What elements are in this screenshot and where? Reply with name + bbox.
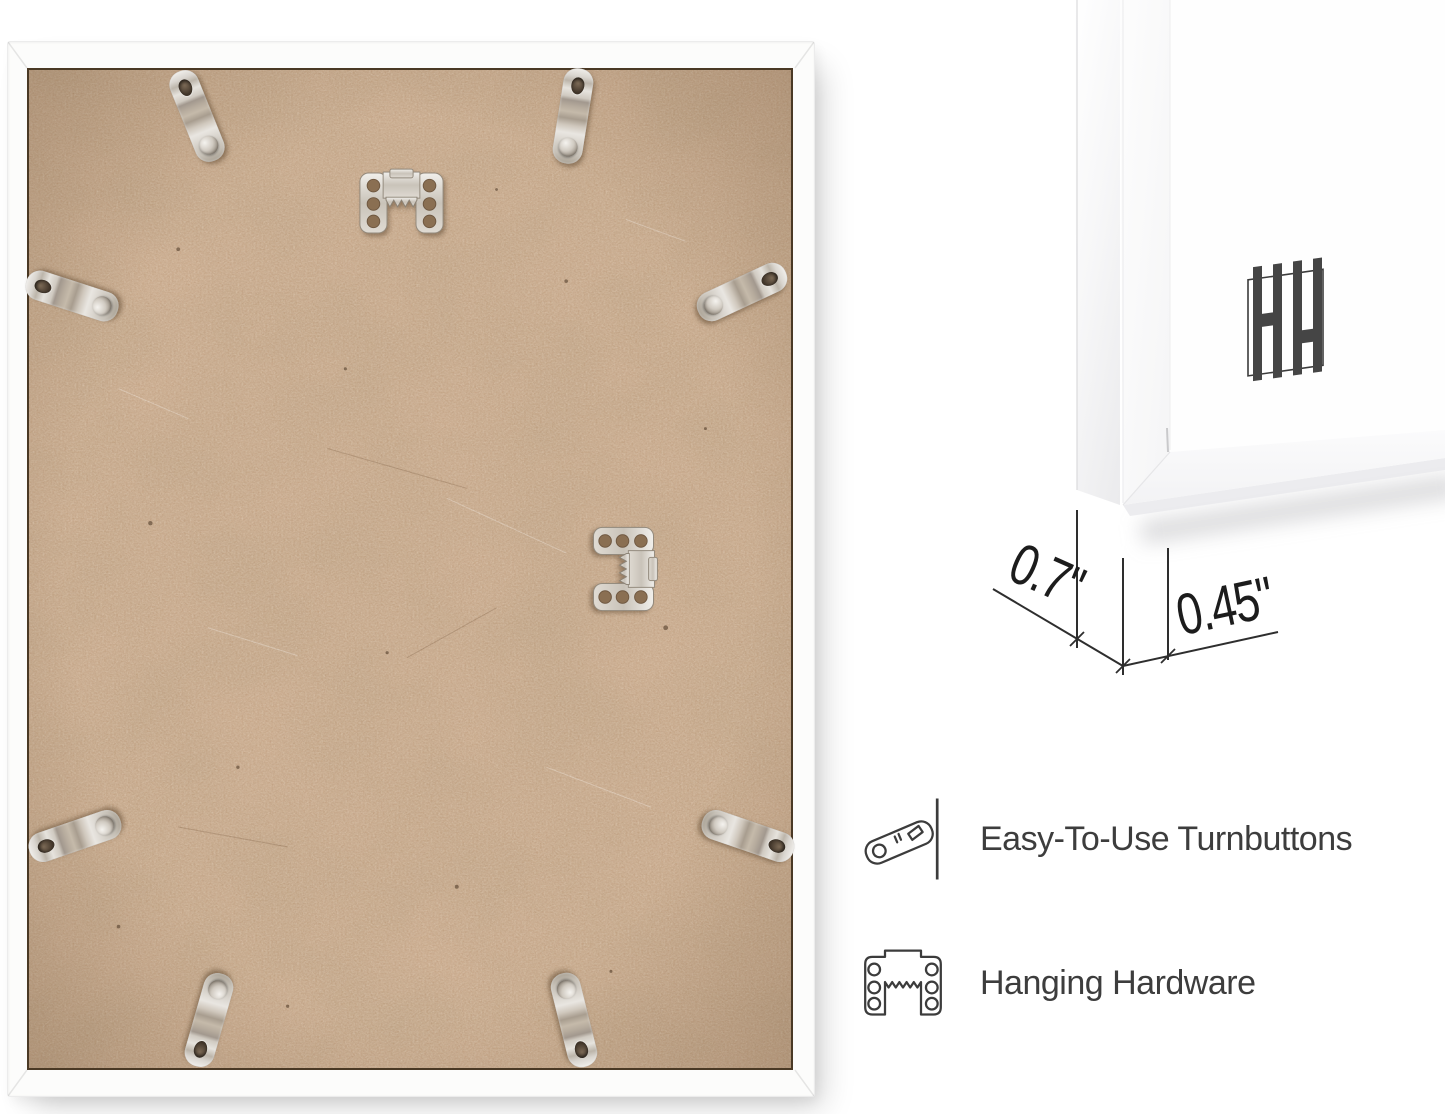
screw-icon — [714, 821, 723, 830]
feature-hanging-hardware: Hanging Hardware — [858, 940, 1398, 1026]
frame-shadow — [1140, 474, 1445, 543]
face-width-dimension-label: 0.45" — [1170, 563, 1278, 651]
screw-icon — [103, 820, 106, 831]
frame-front-mat — [1168, 0, 1445, 470]
screw-icon — [712, 300, 714, 311]
depth-dimension-label: 0.7" — [999, 529, 1092, 622]
screw-icon — [561, 987, 572, 991]
frame-side-face — [1075, 0, 1123, 512]
screw-icon — [97, 301, 106, 310]
frame-edge-lines — [1040, 0, 1445, 560]
frame-front-face — [1120, 0, 1170, 510]
frame-back-photo — [8, 42, 814, 1096]
frame-bottom-underside — [1120, 430, 1445, 530]
screw-icon — [203, 144, 214, 147]
feature-list: Easy-To-Use Turnbuttons Hanging Hardware — [858, 796, 1398, 1084]
screw-icon — [563, 143, 573, 151]
brand-logo — [1247, 242, 1325, 382]
feature-label: Hanging Hardware — [980, 964, 1256, 1003]
turnbutton-icon — [858, 796, 948, 882]
dimension-annotations — [950, 480, 1320, 710]
frame-bottom-rail — [1120, 430, 1445, 530]
screw-icon — [213, 985, 223, 994]
feature-turnbuttons: Easy-To-Use Turnbuttons — [858, 796, 1398, 882]
product-image-canvas: 0.7" 0.45" Easy-To-Use Turnbuttons — [0, 0, 1445, 1114]
sawtooth-hanger — [589, 526, 659, 613]
hanging-hardware-icon — [858, 940, 948, 1026]
sawtooth-hanger — [358, 168, 445, 238]
feature-label: Easy-To-Use Turnbuttons — [980, 820, 1352, 859]
